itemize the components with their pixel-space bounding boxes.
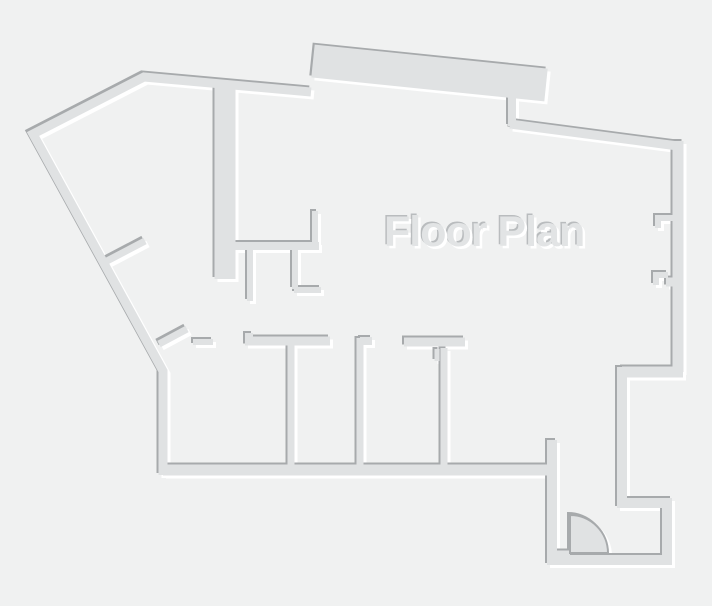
wall-layer [33,61,683,565]
floor-plan: Floor Plan [0,0,712,606]
layer-light-outer-left [36,80,314,478]
floor-plan-drawing [0,0,712,606]
wall-outer-top-right [510,124,678,146]
floor-plan-title: Floor Plan [384,211,584,254]
wall-outer-left [33,77,311,475]
entry-door-swing [570,515,608,553]
